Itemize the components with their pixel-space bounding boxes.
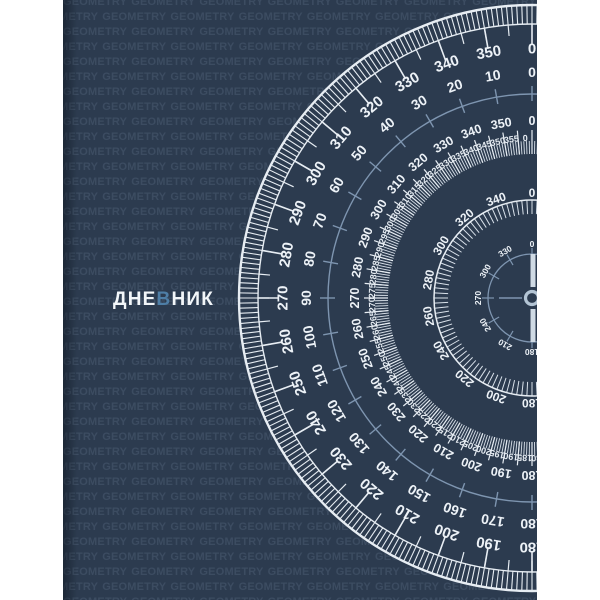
diary-title: ДНЕВНИК <box>113 289 214 311</box>
fifth-scale-20deg-number: 180 <box>522 396 537 410</box>
fine-scale-5deg-number: 265 <box>367 311 379 327</box>
outer-scale-counterclockwise-number: 10 <box>484 66 502 84</box>
page: { "page": { "background": "#ffffff" }, "… <box>0 0 600 600</box>
fine-scale-5deg-number: 270 <box>367 297 378 312</box>
outer-scale-counterclockwise-number: 180 <box>520 516 537 532</box>
notebook-cover: GEOMETRY GEOMETRY GEOMETRY GEOMETRY GEOM… <box>63 0 537 600</box>
compass-scale-30deg-number: 180 <box>525 347 537 357</box>
outer-scale-clockwise-number: 0 <box>528 41 536 58</box>
outer-scale-clockwise-number: 180 <box>519 539 537 556</box>
outer-scale-counterclockwise-number: 90 <box>298 290 314 306</box>
fifth-scale-20deg-number: 0 <box>529 186 536 200</box>
fine-scale-5deg-number: 0 <box>523 133 528 143</box>
compass-scale-30deg-number: 270 <box>473 291 483 305</box>
diary-title-accent-letter: В <box>157 289 172 310</box>
diary-title-suffix: НИК <box>171 289 214 310</box>
compass-scale-30deg-number: 0 <box>530 239 535 249</box>
outer-scale-counterclockwise-number: 0 <box>528 64 536 80</box>
third-scale-10deg-number: 180 <box>522 468 537 482</box>
third-scale-10deg-number: 270 <box>348 288 362 309</box>
fine-scale-5deg-number: 190 <box>503 451 519 463</box>
outer-scale-counterclockwise-number: 80 <box>300 249 318 267</box>
fine-scale-5deg-number: 180 <box>531 453 537 464</box>
fine-scale-5deg-number: 275 <box>367 283 378 298</box>
third-scale-10deg-number: 0 <box>529 114 536 128</box>
diary-title-prefix: ДНЕ <box>113 289 157 310</box>
outer-scale-clockwise-number: 270 <box>275 285 292 310</box>
fine-scale-5deg-number: 280 <box>367 269 379 285</box>
fine-scale-5deg-number: 185 <box>517 452 532 463</box>
